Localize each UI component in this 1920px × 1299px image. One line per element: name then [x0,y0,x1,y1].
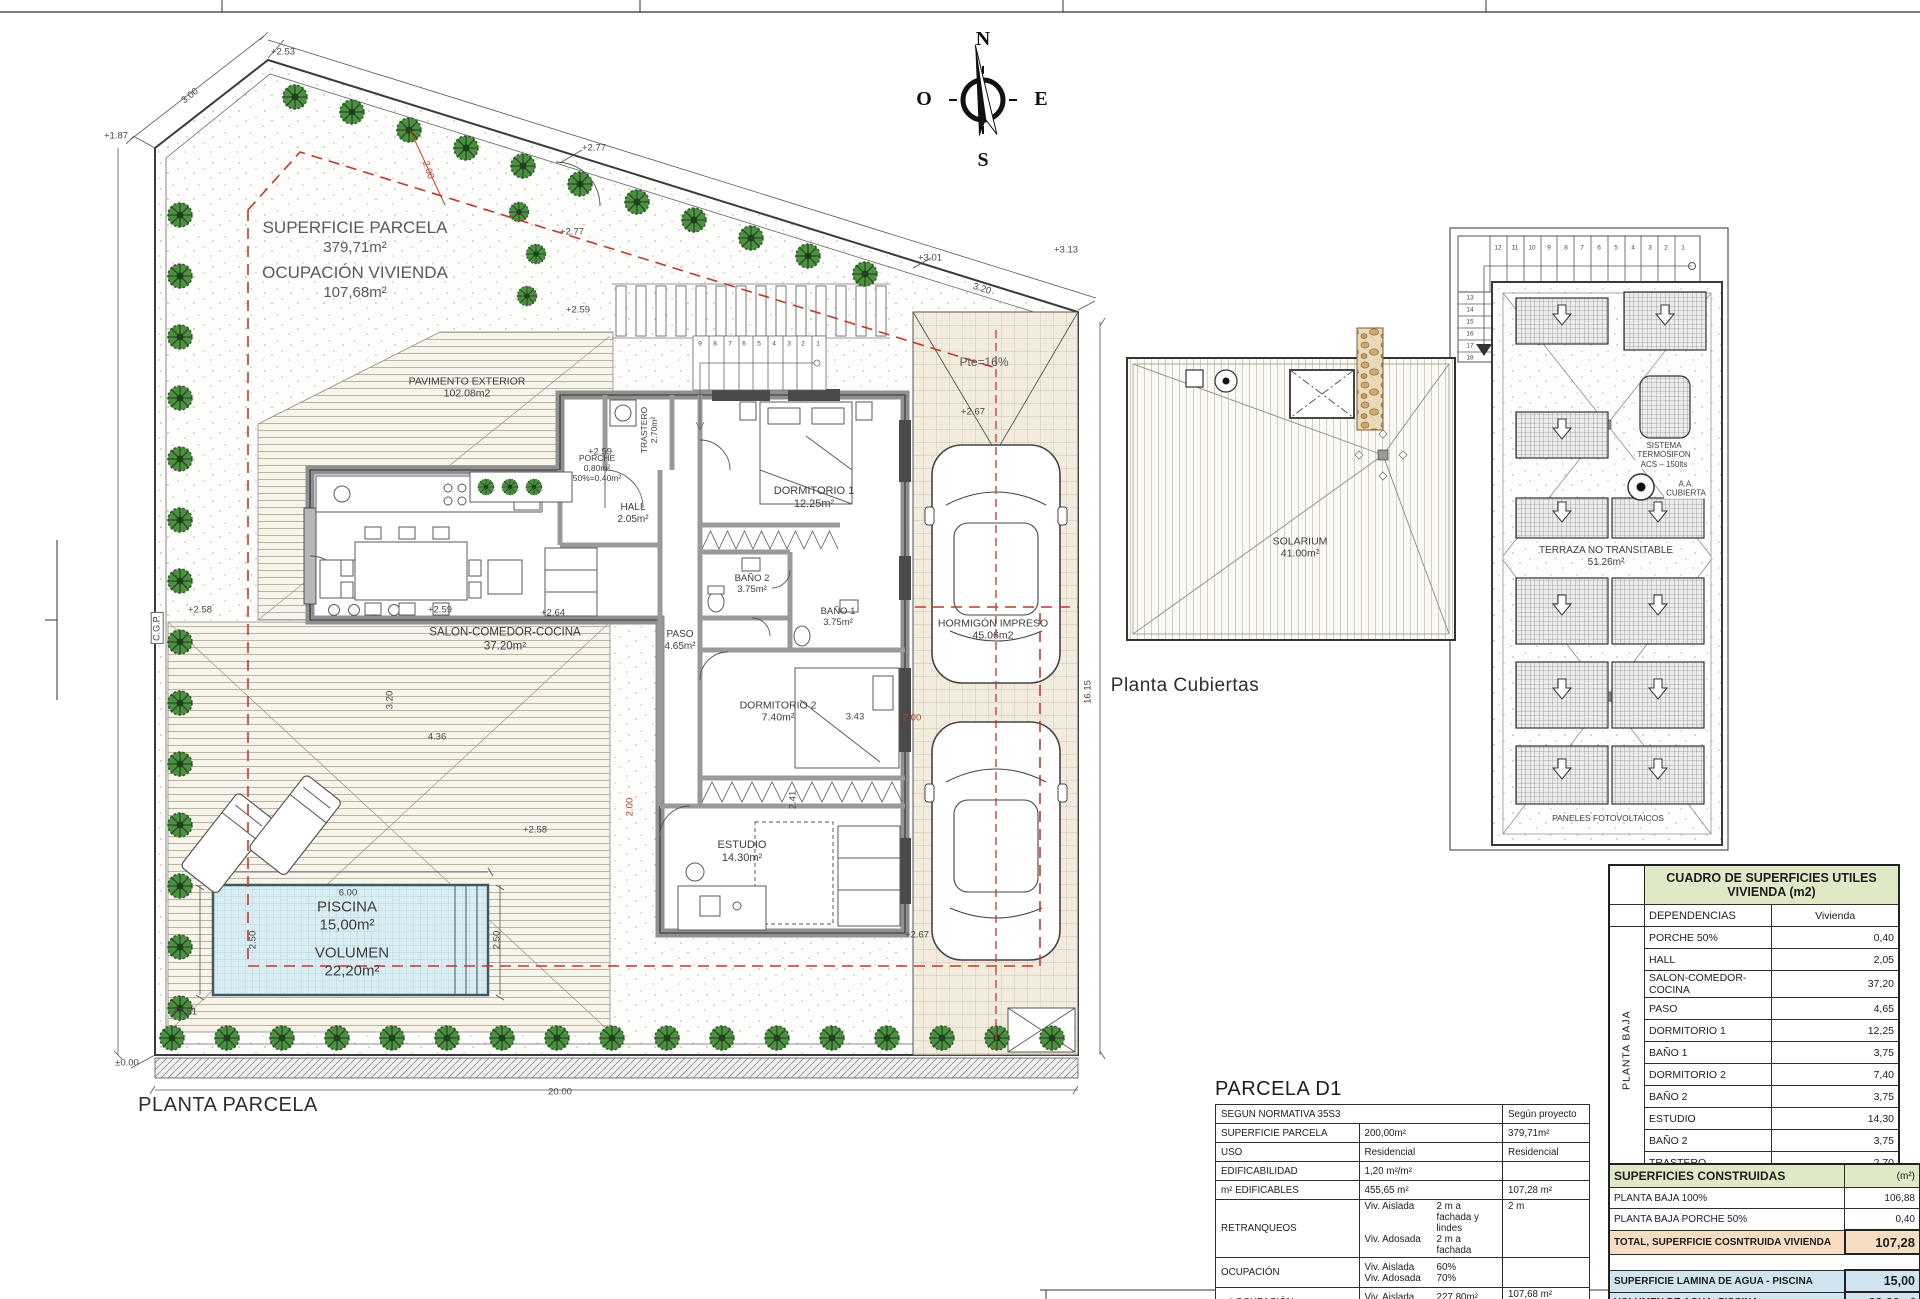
table-row-norm: 200,00m² [1359,1124,1503,1143]
built-header-unit: (m²) [1845,1164,1920,1188]
table-row-label: ESTUDIO [1645,1108,1772,1130]
table-row-proj: 107,68 m² [1503,1288,1590,1299]
architectural-sheet: SUPERFICIE PARCELA379,71m²OCUPACIÓN VIVI… [0,0,1920,1299]
table-row-label: HALL [1645,949,1772,971]
water-surface-label: SUPERFICIE LAMINA DE AGUA - PISCINA [1609,1270,1845,1292]
pool [196,868,504,1000]
table-row-norm: 455,65 m² [1359,1181,1503,1200]
built-header: SUPERFICIES CONSTRUIDAS [1609,1164,1845,1188]
table-row-proj: 379,71m² [1503,1124,1590,1143]
useful-col-vivienda: Vivienda [1772,905,1899,927]
water-volume-label: VOLUMEN DE AGUA, PISCINA [1609,1292,1845,1299]
table-row-proj [1503,1162,1590,1181]
compass-rose-icon [949,43,1017,137]
table-row-norm: Viv. Aislada60% Viv. Adosada70% [1359,1258,1503,1288]
table-row-label: BAÑO 1 [1645,1042,1772,1064]
table-row-proj: Residencial [1503,1143,1590,1162]
site-plan [114,32,1105,1094]
table-row-proj: 2 m [1503,1200,1590,1258]
useful-side-label: PLANTA BAJA [1609,927,1645,1174]
table-row-label: m² OCUPACIÓN [1216,1288,1360,1299]
useful-col-dependencias: DEPENDENCIAS [1645,905,1772,927]
table-row-label: PORCHE 50% [1645,927,1772,949]
table-row-label: PLANTA BAJA PORCHE 50% [1609,1209,1845,1231]
table-row-value: 2,05 [1772,949,1899,971]
table-row-label: m² EDIFICABLES [1216,1181,1360,1200]
table-row-value: 14,30 [1772,1108,1899,1130]
table-row-label: OCUPACIÓN [1216,1258,1360,1288]
table-row-value: 3,75 [1772,1086,1899,1108]
table-row-value: 106,88 [1845,1188,1920,1209]
table-row-label: PASO [1645,998,1772,1020]
table-row-norm: Viv. Aislada227,80m² Viv. Adosada265,80m… [1359,1288,1503,1299]
table-row-value: 3,75 [1772,1042,1899,1064]
table-row-label: DORMITORIO 2 [1645,1064,1772,1086]
built-total-label: TOTAL, SUPERFICIE COSNTRUIDA VIVIENDA [1609,1230,1845,1254]
parcela-header-right: Según proyecto [1503,1105,1590,1124]
roof-stone-strip [1357,328,1383,430]
table-row-value: 3,75 [1772,1130,1899,1152]
table-row-label: SUPERFICIE PARCELA [1216,1124,1360,1143]
parcela-table: SEGUN NORMATIVA 35S3 Según proyecto SUPE… [1215,1104,1590,1299]
table-row-label: BAÑO 2 [1645,1086,1772,1108]
table-row-value: 12,25 [1772,1020,1899,1042]
table-row-label: BAÑO 2 [1645,1130,1772,1152]
table-row-value: 4,65 [1772,998,1899,1020]
table-row-label: USO [1216,1143,1360,1162]
table-row-label: EDIFICABILIDAD [1216,1162,1360,1181]
useful-table-title: CUADRO DE SUPERFICIES UTILES VIVIENDA (m… [1645,865,1900,905]
built-total-value: 107,28 [1845,1230,1920,1254]
table-row-norm: Residencial [1359,1143,1503,1162]
water-surface-value: 15,00 [1845,1270,1920,1292]
water-volume-value: 22,20m³ [1845,1292,1920,1299]
table-row-label: PLANTA BAJA 100% [1609,1188,1845,1209]
roof-plan [1127,228,1728,850]
built-surfaces-table: SUPERFICIES CONSTRUIDAS (m²) PLANTA BAJA… [1608,1163,1920,1299]
table-row-value: 0,40 [1772,927,1899,949]
table-row-proj: 107,28 m² [1503,1181,1590,1200]
table-row-value: 7,40 [1772,1064,1899,1086]
table-row-label: DORMITORIO 1 [1645,1020,1772,1042]
table-row-label: RETRANQUEOS [1216,1200,1360,1258]
street-strip [155,1058,1078,1078]
table-row-norm: Viv. Aislada2 m a fachada y lindes Viv. … [1359,1200,1503,1258]
table-row-label: SALON-COMEDOR-COCINA [1645,971,1772,998]
table-row-value: 37,20 [1772,971,1899,998]
table-row-value: 0,40 [1845,1209,1920,1231]
table-row-norm: 1,20 m²/m² [1359,1162,1503,1181]
table-row-proj [1503,1258,1590,1288]
aa-unit-icon [1628,474,1654,500]
useful-surfaces-table: CUADRO DE SUPERFICIES UTILES VIVIENDA (m… [1608,864,1900,1197]
parcela-header-left: SEGUN NORMATIVA 35S3 [1216,1105,1503,1124]
parcela-table-title: PARCELA D1 [1215,1078,1342,1101]
